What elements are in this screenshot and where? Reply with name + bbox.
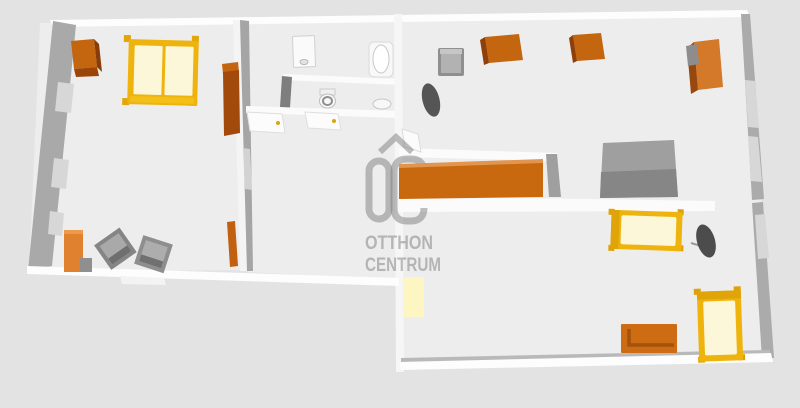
- sideboard-orange: [399, 163, 543, 199]
- watermark-text-line2: CENTRUM: [365, 255, 441, 276]
- door-bathroom-knob: [276, 121, 280, 125]
- bathtub-basin: [373, 45, 389, 73]
- armchair-living-seat: [441, 52, 461, 73]
- bed-single2-mattress: [703, 300, 737, 355]
- watermark-text-line1: OTTHON: [365, 233, 433, 254]
- armchair-living-back: [440, 49, 462, 54]
- cabinet-bottomleft-box: [80, 258, 92, 272]
- cabinet-a-top: [485, 34, 523, 63]
- window-left-1: [55, 82, 74, 113]
- window-left-2: [51, 158, 69, 189]
- cabinet-corner-front: [694, 39, 723, 90]
- cabinet-tall-right-front: [223, 70, 240, 136]
- rug-yellow: [404, 277, 424, 317]
- bed-single1-headboard: [610, 210, 619, 249]
- door-wc-knob: [332, 119, 336, 123]
- bed-double-mattress-left: [133, 45, 162, 95]
- floorplan-svg: OTTHONCENTRUM: [0, 0, 800, 408]
- bed-single2-headboard: [697, 290, 741, 300]
- window-left-3: [48, 211, 64, 236]
- cabinet-bottomleft-top: [64, 230, 83, 234]
- wall-bathroom-south-cap: [280, 76, 292, 108]
- bed-single1-mattress: [620, 215, 676, 246]
- cabinet-corner-panel: [686, 44, 699, 66]
- bidet: [373, 99, 391, 109]
- sofa-gray-shade: [600, 169, 678, 198]
- floorplan-image: OTTHONCENTRUM: [0, 0, 800, 408]
- wardrobe-topleft-top: [71, 39, 97, 69]
- washing-machine-door: [300, 60, 308, 65]
- bed-double-mattress-right: [164, 46, 193, 96]
- cabinet-b-top: [573, 33, 605, 61]
